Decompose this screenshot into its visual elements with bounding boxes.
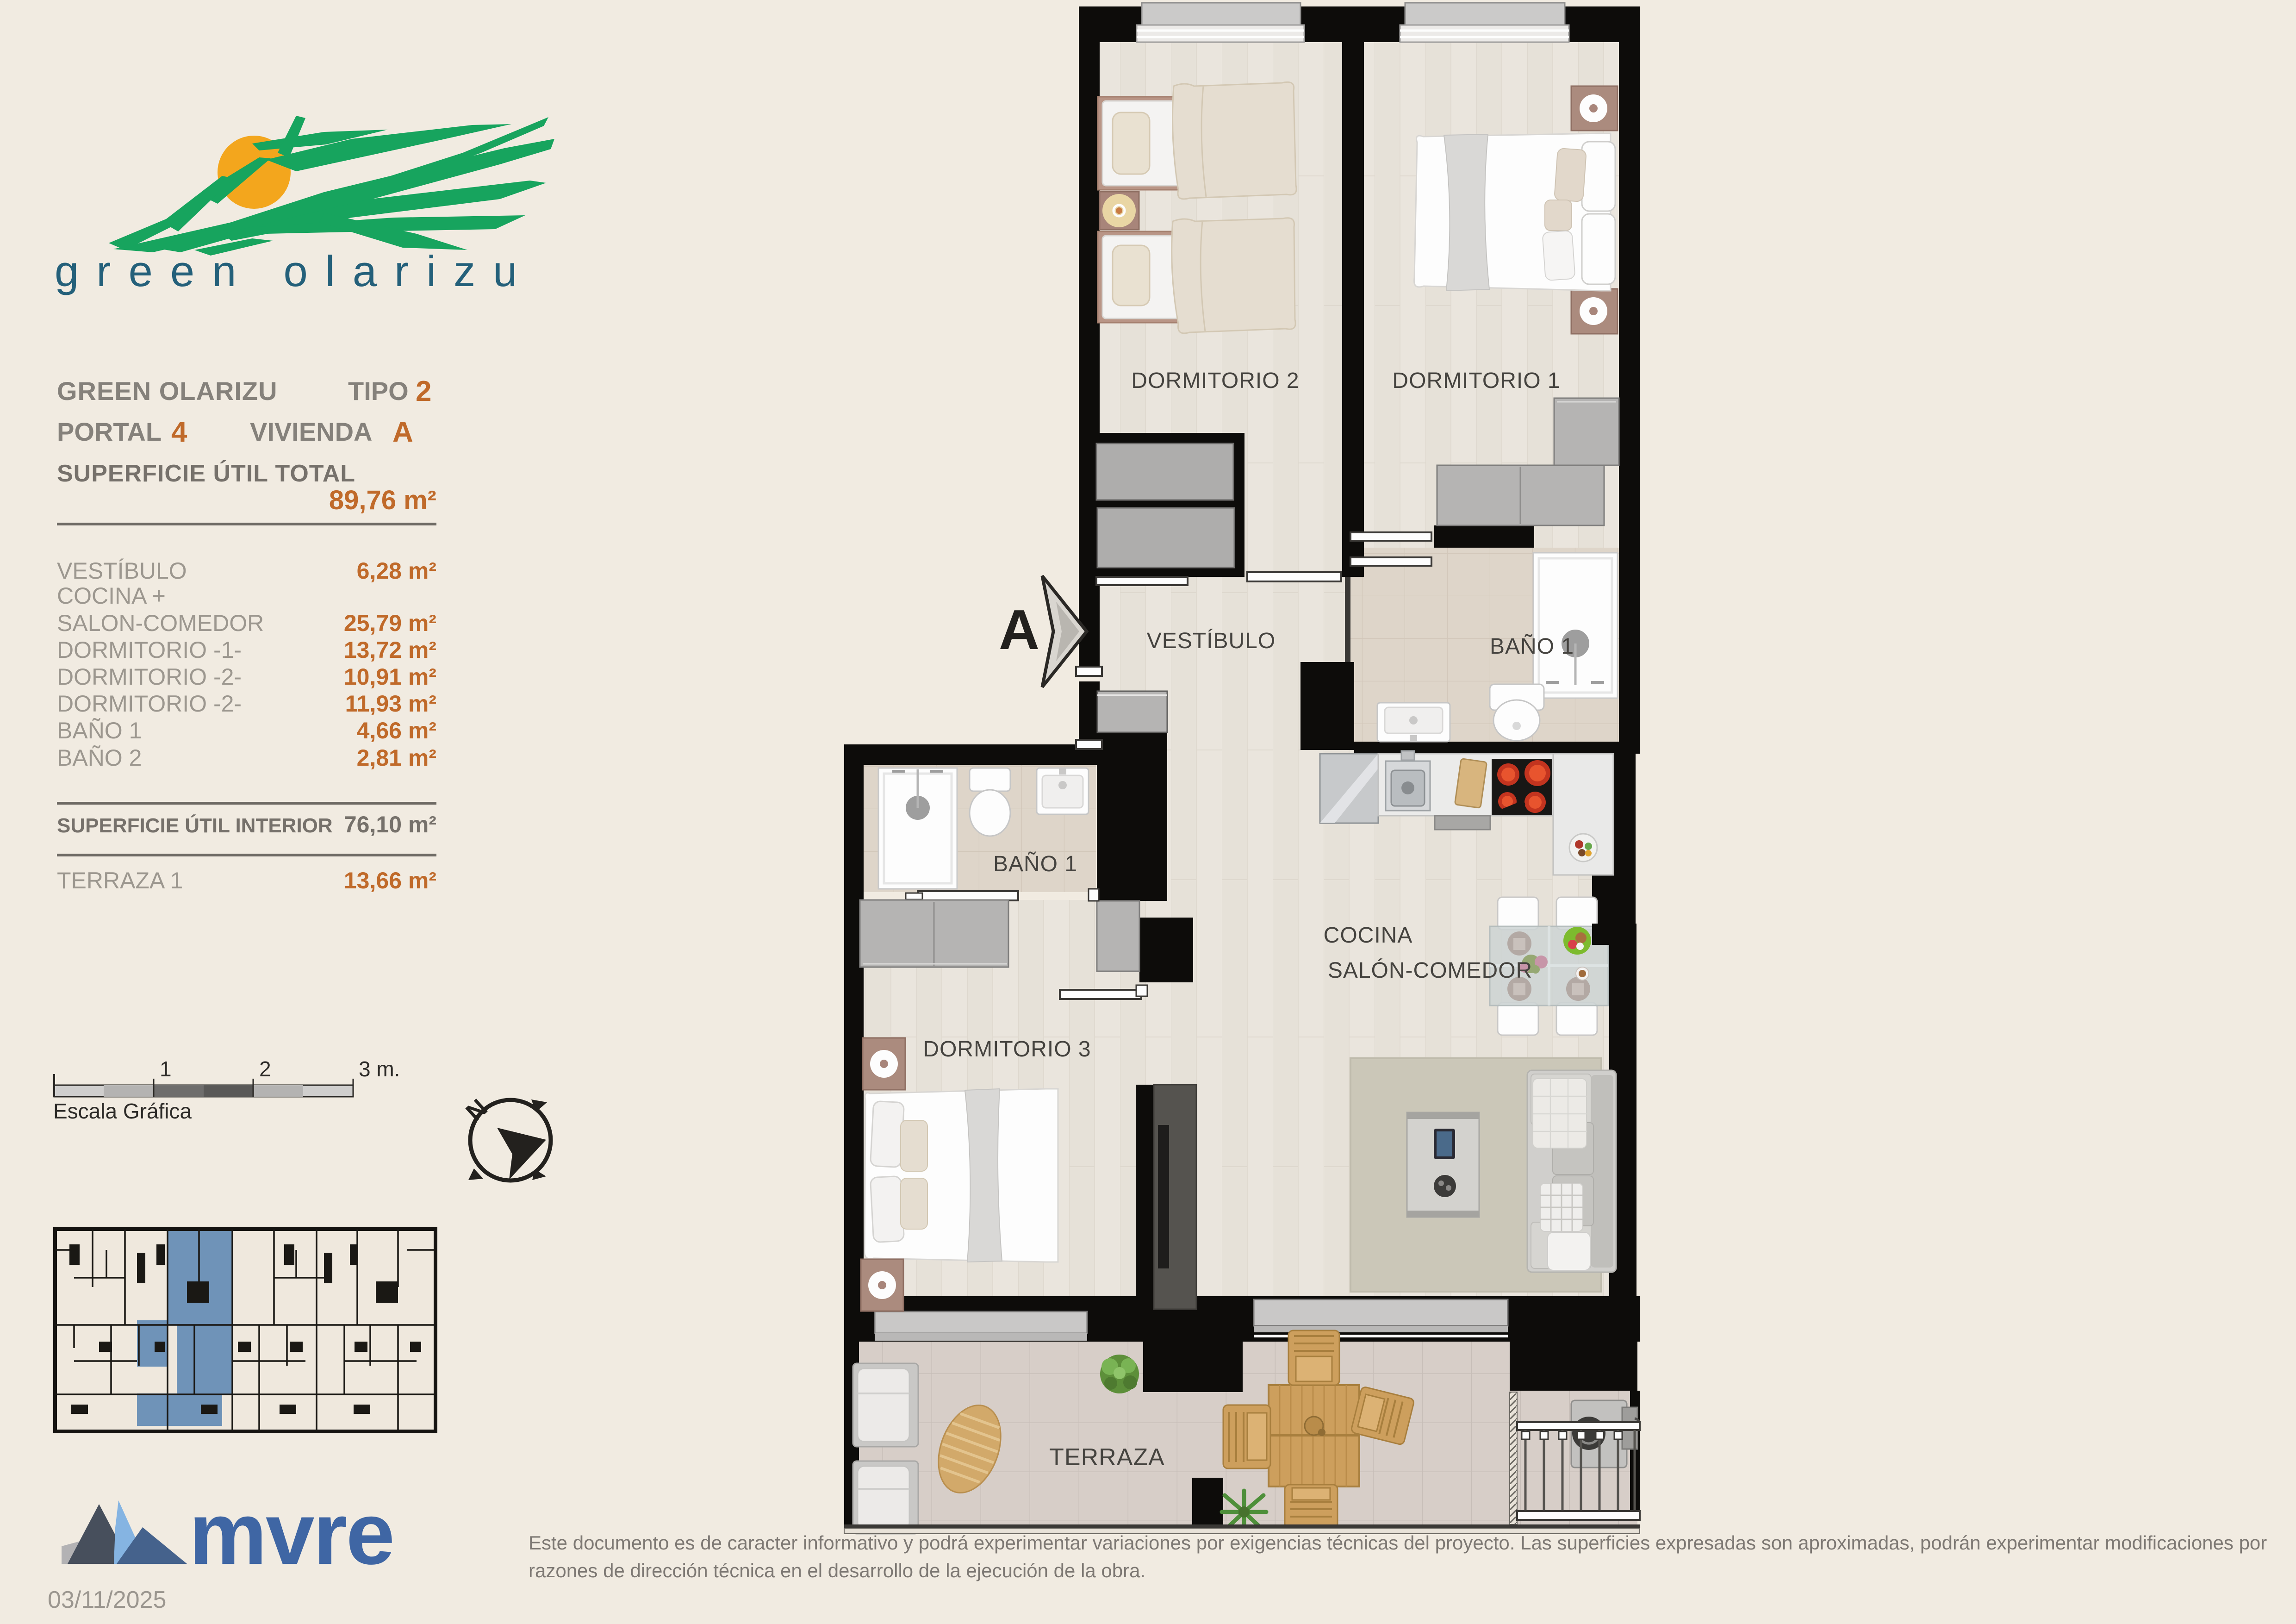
svg-text:4,66 m²: 4,66 m² [357,718,436,743]
svg-text:VESTÍBULO: VESTÍBULO [57,558,187,584]
svg-text:BAÑO 1: BAÑO 1 [1490,634,1574,659]
svg-text:1: 1 [160,1057,172,1081]
svg-text:DORMITORIO 2: DORMITORIO 2 [1131,369,1299,393]
svg-text:razones de dirección técnica e: razones de dirección técnica en el desar… [529,1560,1145,1581]
svg-text:10,91 m²: 10,91 m² [344,664,436,690]
svg-text:PORTAL: PORTAL [57,417,162,446]
svg-text:4: 4 [171,416,187,448]
svg-text:13,66 m²: 13,66 m² [344,868,436,893]
svg-text:3 m.: 3 m. [359,1057,400,1081]
svg-text:2: 2 [416,375,431,407]
svg-text:DORMITORIO -2-: DORMITORIO -2- [57,691,242,717]
svg-text:89,76 m²: 89,76 m² [329,485,436,515]
svg-text:DORMITORIO 3: DORMITORIO 3 [923,1037,1091,1062]
svg-text:SUPERFICIE ÚTIL INTERIOR: SUPERFICIE ÚTIL INTERIOR [57,814,333,837]
svg-text:2,81 m²: 2,81 m² [357,745,436,771]
svg-text:COCINA: COCINA [1324,923,1413,948]
svg-text:DORMITORIO -1-: DORMITORIO -1- [57,637,242,663]
svg-text:Escala Gráfica: Escala Gráfica [53,1099,192,1123]
svg-text:2: 2 [259,1057,271,1081]
svg-text:76,10 m²: 76,10 m² [344,812,436,837]
svg-text:VESTÍBULO: VESTÍBULO [1147,629,1276,653]
svg-text:GREEN OLARIZU: GREEN OLARIZU [57,376,278,406]
svg-text:BAÑO 1: BAÑO 1 [993,851,1077,876]
svg-text:COCINA +: COCINA + [57,583,166,609]
svg-text:DORMITORIO 1: DORMITORIO 1 [1392,369,1560,393]
svg-text:BAÑO 2: BAÑO 2 [57,745,142,771]
svg-text:03/11/2025: 03/11/2025 [48,1587,166,1613]
svg-text:SALON-COMEDOR: SALON-COMEDOR [57,610,264,636]
svg-text:TIPO: TIPO [348,376,409,406]
svg-text:6,28 m²: 6,28 m² [357,558,436,584]
svg-text:mvre: mvre [189,1485,393,1583]
svg-text:13,72 m²: 13,72 m² [344,637,436,663]
svg-text:green olarizu: green olarizu [55,247,535,295]
svg-text:TERRAZA: TERRAZA [1049,1444,1165,1471]
svg-text:11,93 m²: 11,93 m² [345,691,436,717]
svg-text:SALÓN-COMEDOR: SALÓN-COMEDOR [1328,958,1532,983]
svg-text:25,79 m²: 25,79 m² [344,610,436,636]
svg-text:SUPERFICIE ÚTIL TOTAL: SUPERFICIE ÚTIL TOTAL [57,460,355,487]
svg-text:DORMITORIO -2-: DORMITORIO -2- [57,664,242,690]
svg-text:Este documento es de caracter: Este documento es de caracter informativ… [529,1532,2267,1554]
svg-text:A: A [999,598,1039,661]
svg-text:BAÑO 1: BAÑO 1 [57,718,142,743]
svg-text:A: A [392,416,413,448]
svg-text:TERRAZA 1: TERRAZA 1 [57,868,183,893]
svg-text:VIVIENDA: VIVIENDA [250,417,373,446]
